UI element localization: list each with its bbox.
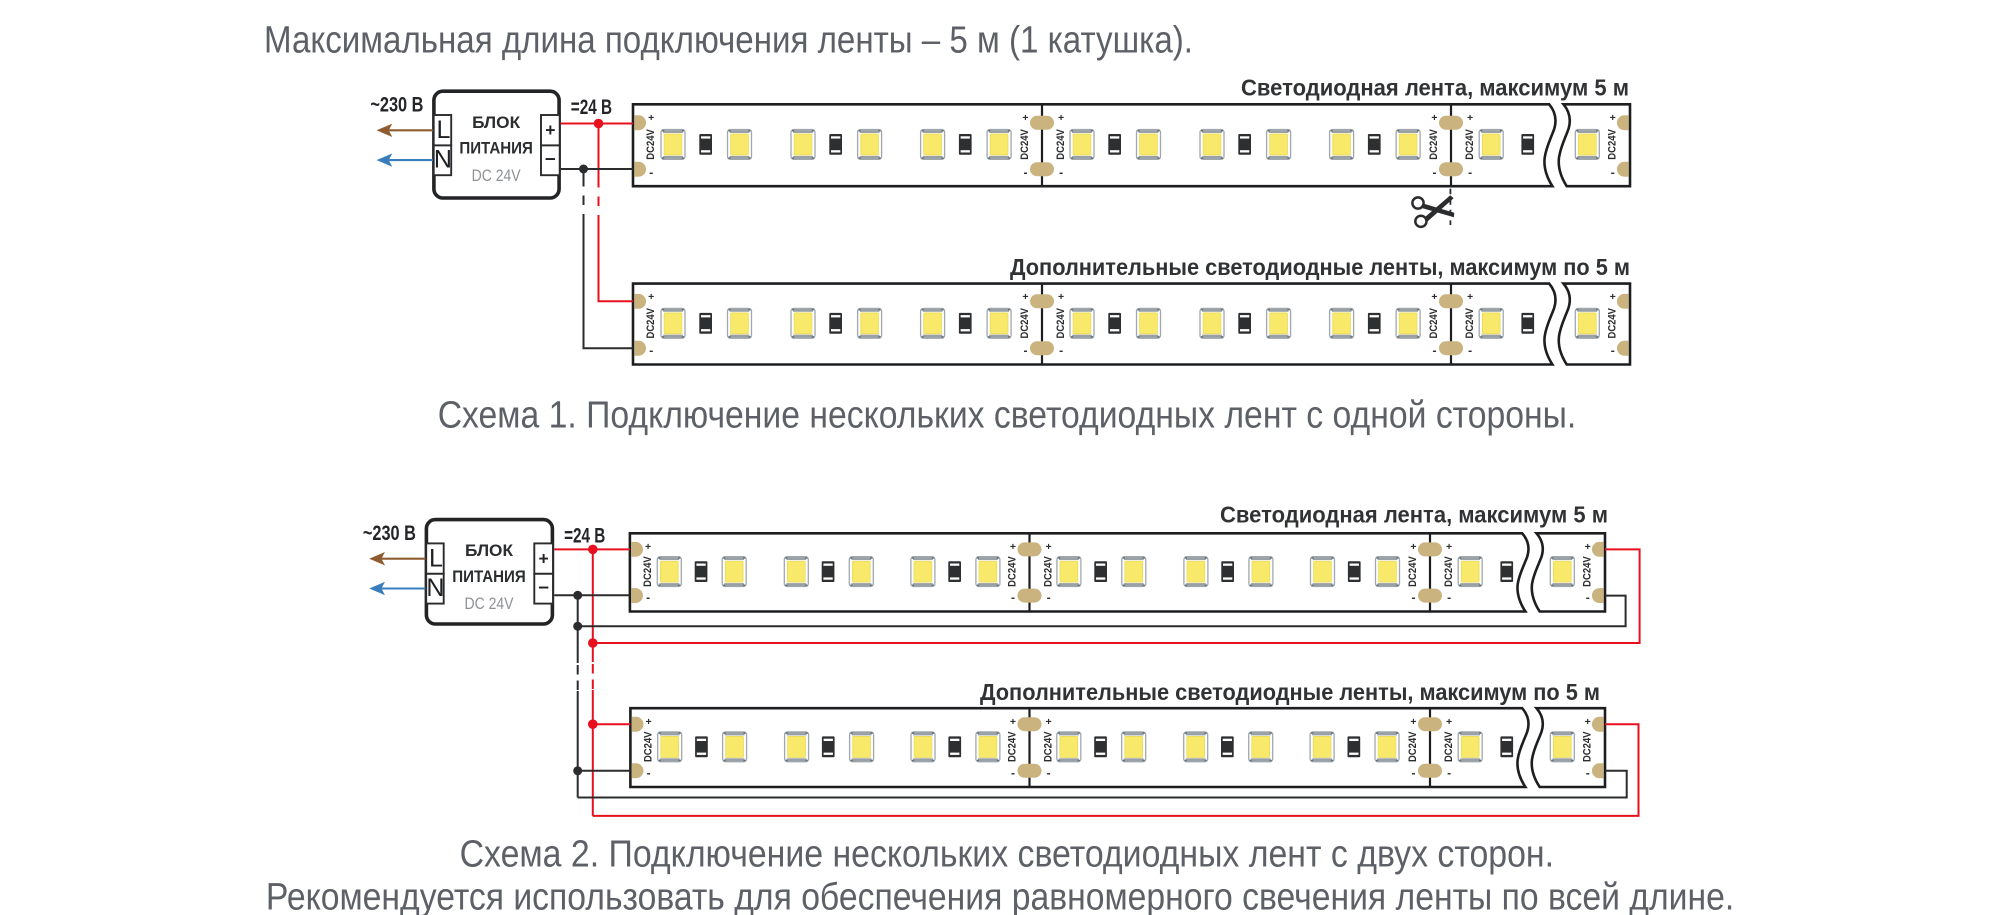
svg-text:+: + bbox=[1585, 716, 1591, 728]
svg-text:+: + bbox=[1431, 291, 1437, 303]
svg-text:DC24V: DC24V bbox=[1019, 129, 1031, 160]
svg-text:DC24V: DC24V bbox=[642, 731, 654, 762]
svg-text:DC24V: DC24V bbox=[645, 129, 657, 160]
svg-text:DC24V: DC24V bbox=[1055, 129, 1067, 160]
svg-text:+: + bbox=[1010, 716, 1016, 728]
svg-text:DC24V: DC24V bbox=[1055, 307, 1067, 338]
svg-text:DC24V: DC24V bbox=[1428, 307, 1440, 338]
svg-text:Дополнительные светодиодные ле: Дополнительные светодиодные ленты, макси… bbox=[980, 679, 1600, 705]
svg-text:–: – bbox=[538, 577, 549, 598]
svg-text:+: + bbox=[1046, 716, 1052, 728]
svg-text:N: N bbox=[434, 146, 452, 174]
svg-text:-: - bbox=[1047, 591, 1051, 605]
svg-text:+: + bbox=[545, 120, 555, 140]
svg-text:DC24V: DC24V bbox=[1042, 556, 1054, 587]
svg-text:-: - bbox=[1024, 165, 1028, 179]
svg-text:-: - bbox=[646, 591, 650, 605]
svg-text:-: - bbox=[1586, 591, 1590, 605]
svg-text:DC24V: DC24V bbox=[1606, 307, 1618, 338]
svg-text:+: + bbox=[1022, 291, 1028, 303]
svg-text:+: + bbox=[1610, 291, 1616, 303]
svg-text:-: - bbox=[1447, 591, 1451, 605]
svg-text:-: - bbox=[1059, 165, 1063, 179]
svg-text:+: + bbox=[1431, 112, 1437, 124]
svg-text:Схема 1. Подключение нескольки: Схема 1. Подключение нескольких светодио… bbox=[438, 394, 1577, 436]
svg-text:DC 24V: DC 24V bbox=[472, 166, 522, 185]
svg-text:-: - bbox=[1433, 165, 1437, 179]
svg-text:DC24V: DC24V bbox=[1606, 129, 1618, 160]
svg-text:Максимальная длина подключения: Максимальная длина подключения ленты – 5… bbox=[264, 19, 1193, 61]
svg-text:DC24V: DC24V bbox=[1007, 731, 1019, 762]
svg-text:+: + bbox=[1058, 112, 1064, 124]
svg-text:-: - bbox=[1586, 766, 1590, 780]
svg-text:+: + bbox=[1446, 716, 1452, 728]
svg-text:=24 В: =24 В bbox=[564, 524, 605, 547]
svg-text:Дополнительные светодиодные ле: Дополнительные светодиодные ленты, макси… bbox=[1010, 254, 1630, 280]
svg-text:БЛОК: БЛОК bbox=[465, 542, 514, 560]
svg-text:-: - bbox=[1412, 766, 1416, 780]
svg-text:DC 24V: DC 24V bbox=[465, 594, 515, 613]
svg-text:-: - bbox=[1011, 591, 1015, 605]
svg-text:+: + bbox=[1467, 291, 1473, 303]
svg-text:~230 В: ~230 В bbox=[363, 522, 416, 545]
svg-text:-: - bbox=[649, 344, 653, 358]
svg-text:ПИТАНИЯ: ПИТАНИЯ bbox=[459, 140, 533, 158]
svg-text:DC24V: DC24V bbox=[1581, 556, 1593, 587]
svg-text:L: L bbox=[436, 116, 450, 144]
svg-text:DC24V: DC24V bbox=[1581, 731, 1593, 762]
svg-text:L: L bbox=[429, 545, 443, 573]
svg-text:+: + bbox=[1046, 541, 1052, 553]
svg-text:+: + bbox=[1058, 291, 1064, 303]
svg-text:DC24V: DC24V bbox=[642, 556, 654, 587]
svg-text:+: + bbox=[1410, 541, 1416, 553]
svg-text:DC24V: DC24V bbox=[1042, 731, 1054, 762]
svg-text:+: + bbox=[539, 549, 549, 569]
svg-text:-: - bbox=[1011, 766, 1015, 780]
svg-text:DC24V: DC24V bbox=[1443, 731, 1455, 762]
svg-text:–: – bbox=[545, 149, 556, 170]
svg-text:Светодиодная лента, максимум 5: Светодиодная лента, максимум 5 м bbox=[1241, 75, 1629, 101]
svg-text:+: + bbox=[1410, 716, 1416, 728]
svg-text:-: - bbox=[1468, 165, 1472, 179]
svg-text:+: + bbox=[1010, 541, 1016, 553]
svg-text:-: - bbox=[649, 165, 653, 179]
svg-text:-: - bbox=[1468, 344, 1472, 358]
svg-text:DC24V: DC24V bbox=[1443, 556, 1455, 587]
svg-text:+: + bbox=[1022, 112, 1028, 124]
svg-text:-: - bbox=[1412, 591, 1416, 605]
svg-text:Рекомендуется использовать для: Рекомендуется использовать для обеспечен… bbox=[266, 877, 1734, 915]
svg-text:-: - bbox=[1047, 766, 1051, 780]
svg-text:+: + bbox=[648, 112, 654, 124]
svg-text:DC24V: DC24V bbox=[1407, 731, 1419, 762]
svg-text:DC24V: DC24V bbox=[1428, 129, 1440, 160]
svg-text:-: - bbox=[1024, 344, 1028, 358]
svg-text:Светодиодная лента, максимум 5: Светодиодная лента, максимум 5 м bbox=[1220, 502, 1608, 528]
svg-text:DC24V: DC24V bbox=[1464, 307, 1476, 338]
svg-text:DC24V: DC24V bbox=[1007, 556, 1019, 587]
svg-text:ПИТАНИЯ: ПИТАНИЯ bbox=[452, 568, 526, 586]
svg-text:~230 В: ~230 В bbox=[370, 93, 423, 116]
svg-text:-: - bbox=[1059, 344, 1063, 358]
svg-text:DC24V: DC24V bbox=[1407, 556, 1419, 587]
svg-text:Схема 2. Подключение нескольки: Схема 2. Подключение нескольких светодио… bbox=[460, 834, 1554, 876]
svg-text:+: + bbox=[1446, 541, 1452, 553]
svg-text:+: + bbox=[646, 716, 652, 728]
svg-text:-: - bbox=[647, 766, 651, 780]
svg-text:+: + bbox=[1467, 112, 1473, 124]
svg-text:-: - bbox=[1433, 344, 1437, 358]
svg-text:N: N bbox=[426, 574, 444, 602]
svg-text:+: + bbox=[1610, 112, 1616, 124]
svg-text:+: + bbox=[645, 541, 651, 553]
svg-text:=24 В: =24 В bbox=[571, 96, 612, 119]
svg-text:+: + bbox=[648, 291, 654, 303]
svg-text:DC24V: DC24V bbox=[1019, 307, 1031, 338]
svg-text:DC24V: DC24V bbox=[1464, 129, 1476, 160]
svg-text:-: - bbox=[1611, 344, 1615, 358]
svg-text:-: - bbox=[1447, 766, 1451, 780]
svg-text:-: - bbox=[1611, 165, 1615, 179]
svg-text:DC24V: DC24V bbox=[645, 307, 657, 338]
svg-text:БЛОК: БЛОК bbox=[472, 114, 521, 132]
svg-text:+: + bbox=[1585, 541, 1591, 553]
